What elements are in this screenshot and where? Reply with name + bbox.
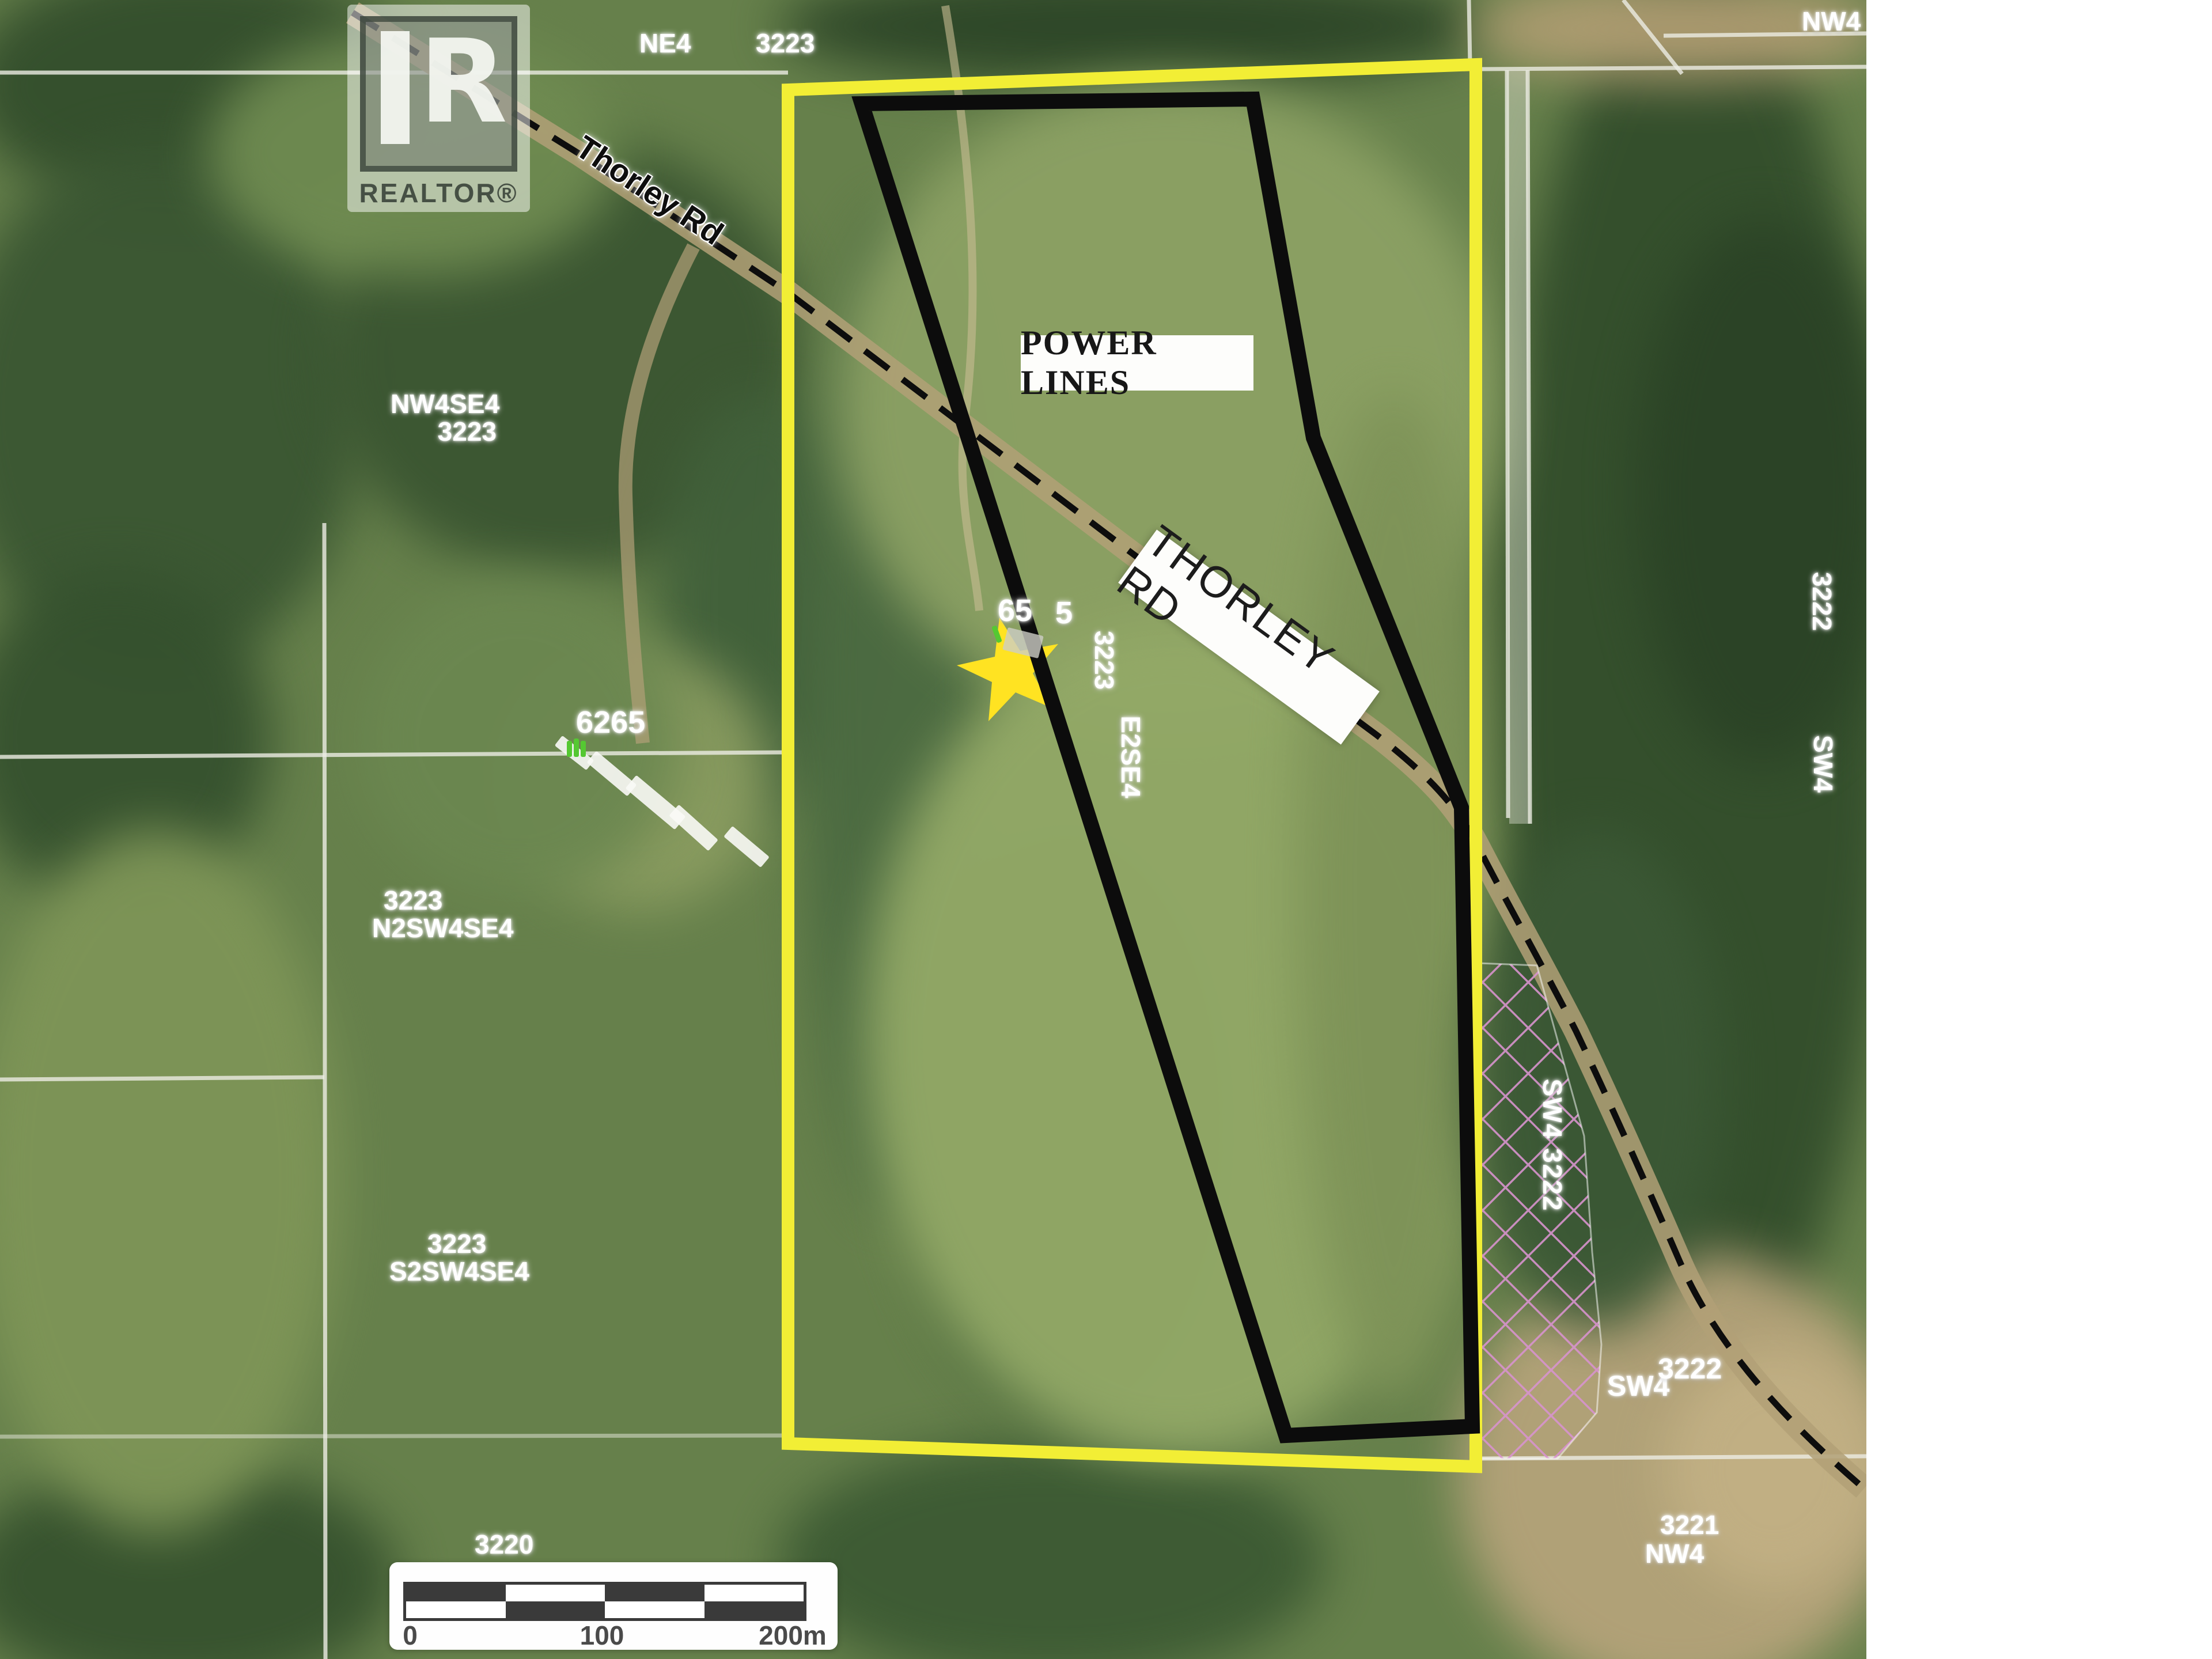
parcel-label-n2-line1: 3223 [384, 887, 513, 915]
driveway [626, 247, 694, 743]
scale-segment [605, 1585, 704, 1601]
map-vector-overlay [0, 0, 1866, 1659]
scale-tick-200: 200m [759, 1620, 827, 1651]
parcel-label-nw4se4-line2: 3223 [391, 418, 497, 446]
parcel-label-s2sw4se4: 3223 S2SW4SE4 [389, 1230, 529, 1286]
parcel-label-s2-line2: S2SW4SE4 [389, 1258, 529, 1286]
power-lines-annotation: POWER LINES [1021, 335, 1253, 391]
neighbor-address-label: 6265 [576, 706, 645, 738]
section-label-3222-right: 3222 [1808, 572, 1835, 631]
scale-segment [506, 1601, 605, 1618]
parcel-label-n2sw4se4: 3223 N2SW4SE4 [372, 887, 513, 942]
black-property-boundary [862, 99, 1472, 1435]
vegetation-icon [574, 738, 579, 757]
section-label-3221: 3221 [1660, 1512, 1719, 1539]
parcel-label-nw4se4: NW4SE4 3223 [391, 391, 497, 446]
parcel-label-sw4-3222-vertical: SW4 3222 [1538, 1079, 1566, 1212]
scale-segment [406, 1585, 506, 1601]
realtor-wordmark: REALTOR® [347, 177, 530, 209]
parcel-label-nw4-se: NW4 [1645, 1540, 1704, 1568]
section-label-3220: 3220 [475, 1531, 533, 1559]
parcel-label-e2se4-vertical: E2SE4 [1116, 715, 1144, 798]
parcel-label-ne4: NE4 [639, 30, 691, 58]
scale-segment [406, 1601, 506, 1618]
section-label-3222-bottom: 3222 [1658, 1354, 1722, 1384]
scale-segment [704, 1601, 804, 1618]
parcel-label-nw4se4-line1: NW4SE4 [391, 391, 497, 418]
aerial-parcel-map: NE4 3223 NW4 NW4SE4 3223 3223 N2SW4SE4 3… [0, 0, 2212, 1659]
realtor-logo-letter: R [419, 15, 507, 149]
parcel-label-n2-line2: N2SW4SE4 [372, 915, 513, 942]
page-white-margin [1866, 0, 2212, 1659]
road-allowance-band [1507, 70, 1530, 824]
scale-tick-100: 100 [580, 1620, 624, 1651]
scale-segment [506, 1585, 605, 1601]
parcel-label-s2-line1: 3223 [427, 1230, 529, 1258]
vegetation-icon [567, 741, 572, 757]
scale-bar-checker [403, 1582, 806, 1621]
realtor-logo-icon: R [360, 16, 517, 172]
map-canvas: NE4 3223 NW4 NW4SE4 3223 3223 N2SW4SE4 3… [0, 0, 1866, 1659]
vegetation-icon [581, 741, 586, 757]
realtor-logo-bar [381, 31, 410, 144]
scale-segment [605, 1601, 704, 1618]
subject-address-right: 5 [1055, 597, 1073, 629]
scale-segment [704, 1585, 804, 1601]
parcel-label-sw4-right: SW4 [1809, 735, 1836, 793]
scale-tick-0: 0 [403, 1620, 418, 1651]
realtor-watermark: R REALTOR® [347, 5, 530, 212]
parcel-label-nw4-topright: NW4 [1802, 8, 1861, 36]
section-label-3223-top: 3223 [756, 30, 815, 58]
map-scale-bar: 0 100 200m [389, 1562, 838, 1650]
section-label-3223-vertical: 3223 [1090, 631, 1118, 690]
subject-address-left: 65 [998, 594, 1032, 627]
